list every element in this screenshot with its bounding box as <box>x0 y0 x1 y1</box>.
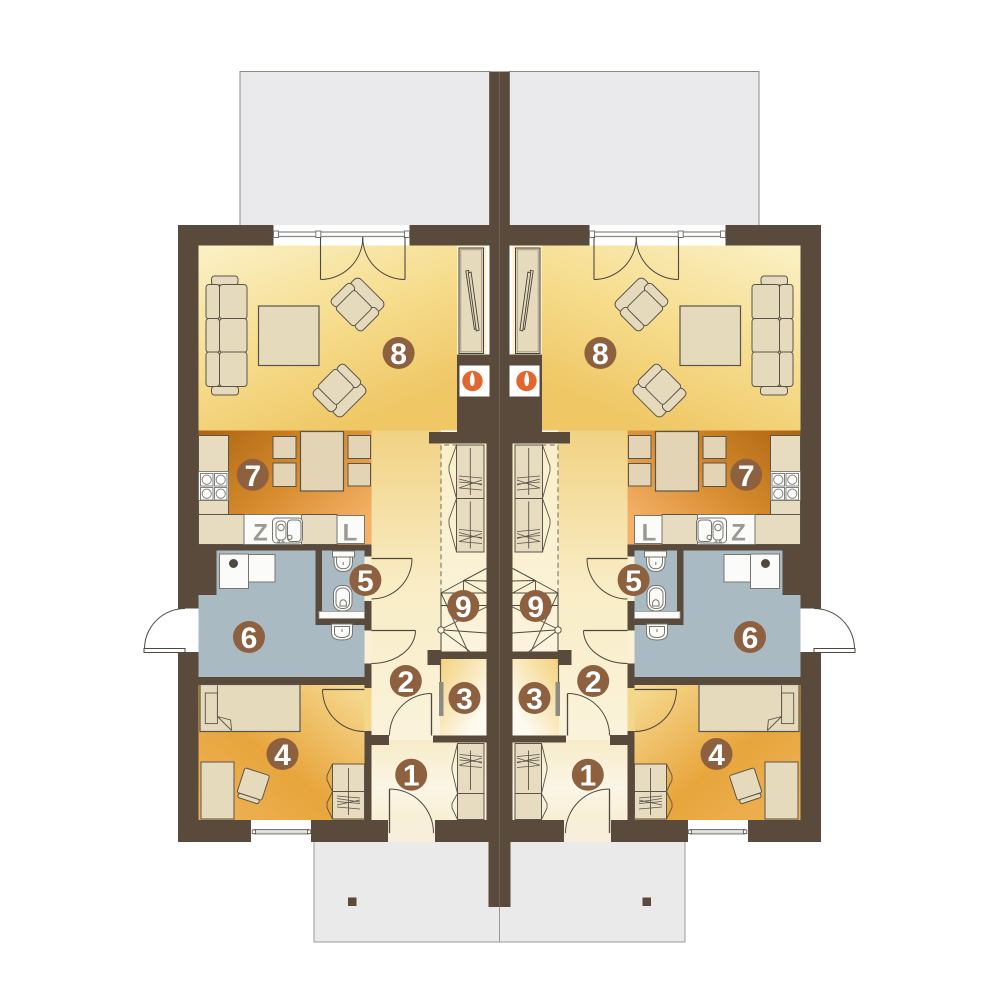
svg-text:3: 3 <box>526 683 543 716</box>
svg-text:1: 1 <box>403 760 420 793</box>
svg-text:9: 9 <box>455 591 472 624</box>
svg-text:4: 4 <box>274 739 291 772</box>
svg-text:Z: Z <box>731 520 746 547</box>
svg-text:6: 6 <box>742 622 759 655</box>
svg-text:4: 4 <box>708 739 725 772</box>
svg-text:L: L <box>343 520 358 547</box>
svg-text:5: 5 <box>625 565 642 598</box>
svg-text:3: 3 <box>456 683 473 716</box>
svg-text:Z: Z <box>253 520 268 547</box>
svg-text:5: 5 <box>357 565 374 598</box>
svg-text:2: 2 <box>585 666 602 699</box>
svg-text:6: 6 <box>241 622 258 655</box>
svg-text:2: 2 <box>397 666 414 699</box>
svg-text:7: 7 <box>738 460 755 493</box>
svg-text:8: 8 <box>390 338 407 371</box>
svg-text:1: 1 <box>579 760 596 793</box>
svg-text:8: 8 <box>592 338 609 371</box>
svg-text:9: 9 <box>527 591 544 624</box>
svg-text:7: 7 <box>244 460 261 493</box>
svg-text:L: L <box>642 520 657 547</box>
